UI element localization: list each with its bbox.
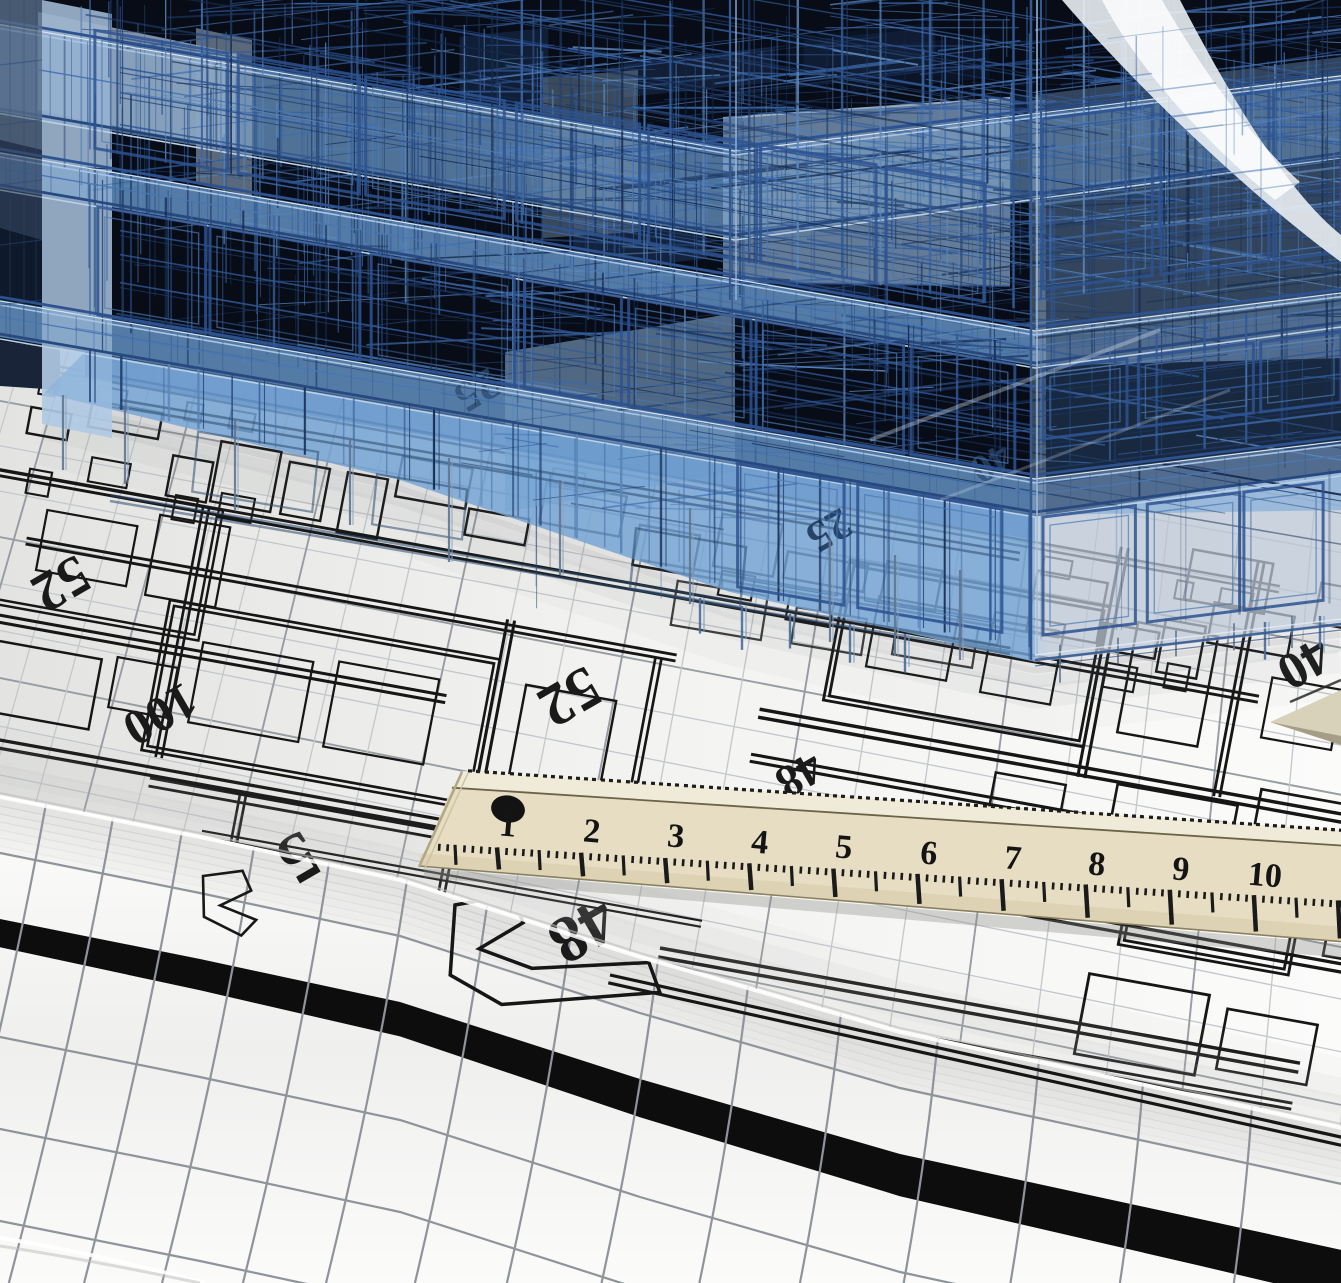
- svg-text:10: 10: [1246, 856, 1283, 896]
- svg-text:6: 6: [919, 834, 939, 872]
- svg-text:9: 9: [1171, 850, 1191, 888]
- svg-text:4: 4: [750, 823, 770, 861]
- svg-text:7: 7: [1003, 839, 1023, 877]
- svg-text:5: 5: [834, 828, 854, 866]
- svg-text:8: 8: [1087, 845, 1107, 883]
- svg-text:2: 2: [582, 812, 602, 850]
- svg-text:1: 1: [498, 806, 518, 844]
- svg-text:3: 3: [666, 817, 686, 855]
